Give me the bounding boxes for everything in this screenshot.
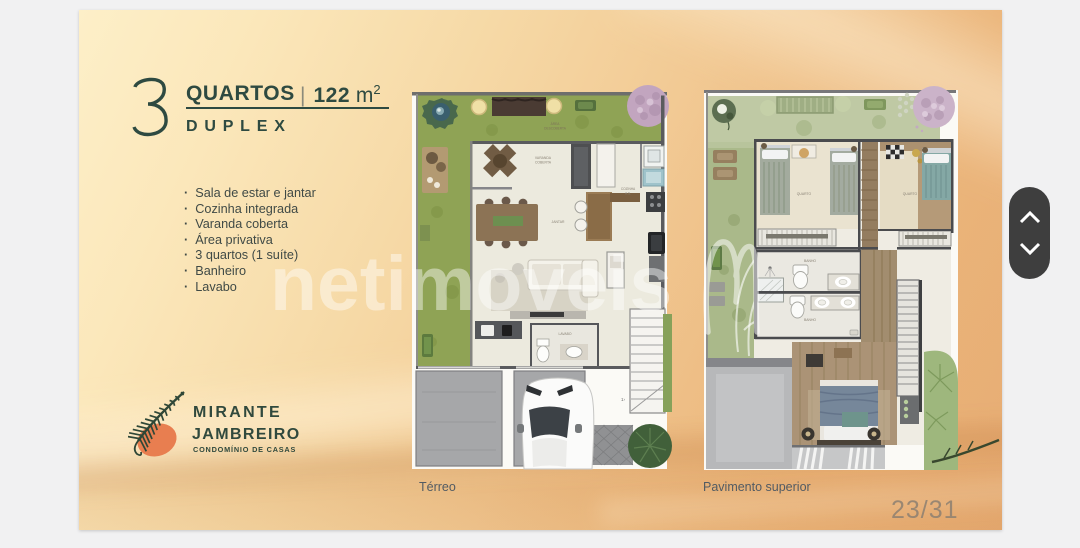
- svg-text:BANHO: BANHO: [804, 259, 816, 263]
- svg-text:ÁREA: ÁREA: [551, 122, 561, 126]
- svg-text:LAVABO: LAVABO: [558, 332, 571, 336]
- svg-text:QUARTO: QUARTO: [903, 192, 918, 196]
- svg-text:VARANDA: VARANDA: [535, 156, 552, 160]
- svg-text:JANTAR: JANTAR: [552, 220, 565, 224]
- svg-text:A.S.: A.S.: [625, 192, 631, 196]
- svg-text:COZINHA: COZINHA: [621, 187, 636, 191]
- svg-text:DESCOBERTA: DESCOBERTA: [544, 127, 567, 131]
- svg-text:1›: 1›: [621, 397, 626, 402]
- svg-text:COBERTA: COBERTA: [535, 161, 552, 165]
- svg-text:BANHO: BANHO: [804, 318, 816, 322]
- svg-text:QUARTO: QUARTO: [797, 192, 812, 196]
